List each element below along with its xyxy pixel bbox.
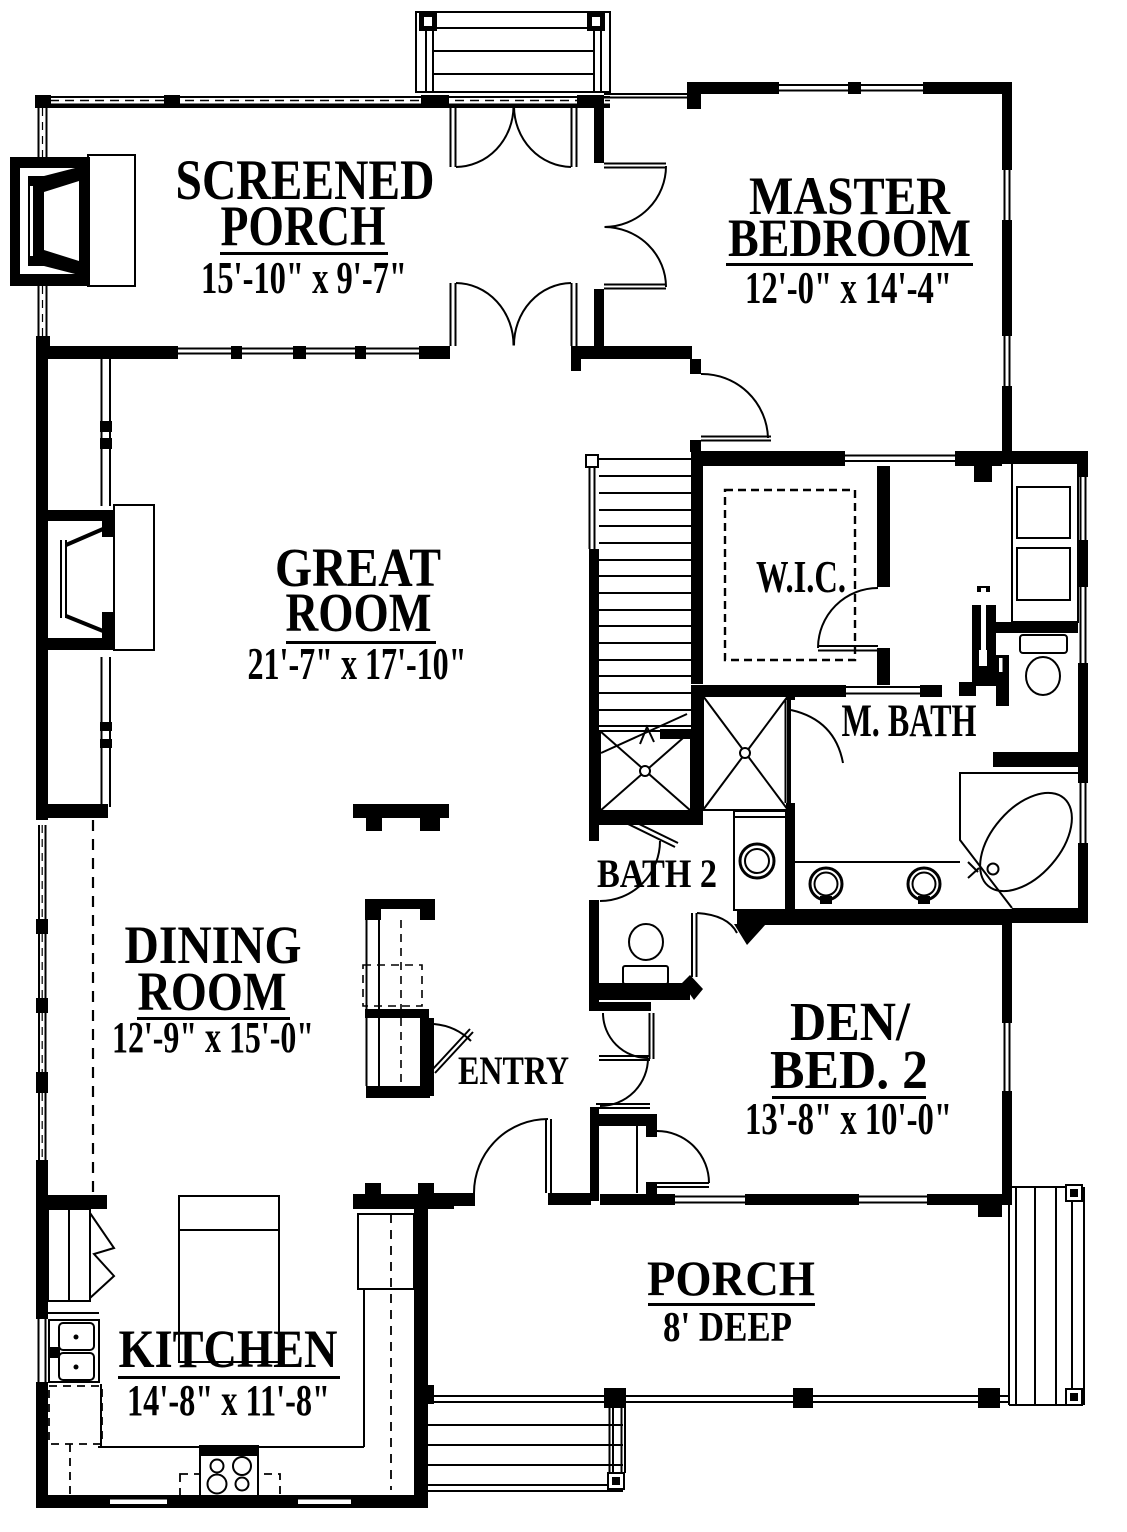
svg-text:14'-8" x 11'-8": 14'-8" x 11'-8" (127, 1376, 330, 1425)
svg-text:PORCH: PORCH (647, 1250, 815, 1306)
svg-text:W.I.C.: W.I.C. (756, 551, 846, 602)
svg-text:12'-9" x 15'-0": 12'-9" x 15'-0" (112, 1013, 314, 1062)
svg-text:BEDROOM: BEDROOM (728, 208, 971, 268)
svg-text:13'-8" x 10'-0": 13'-8" x 10'-0" (745, 1094, 952, 1144)
svg-text:BATH 2: BATH 2 (597, 851, 717, 896)
svg-text:M. BATH: M. BATH (842, 695, 977, 747)
svg-text:KITCHEN: KITCHEN (119, 1319, 338, 1379)
svg-text:ENTRY: ENTRY (458, 1048, 569, 1093)
svg-text:12'-0" x 14'-4": 12'-0" x 14'-4" (745, 263, 952, 313)
svg-text:BED. 2: BED. 2 (770, 1039, 928, 1100)
svg-text:PORCH: PORCH (221, 195, 386, 258)
svg-text:8' DEEP: 8' DEEP (663, 1305, 792, 1351)
svg-text:21'-7" x 17'-10": 21'-7" x 17'-10" (248, 639, 467, 689)
svg-text:15'-10" x 9'-7": 15'-10" x 9'-7" (201, 253, 407, 303)
svg-text:ROOM: ROOM (286, 582, 432, 643)
